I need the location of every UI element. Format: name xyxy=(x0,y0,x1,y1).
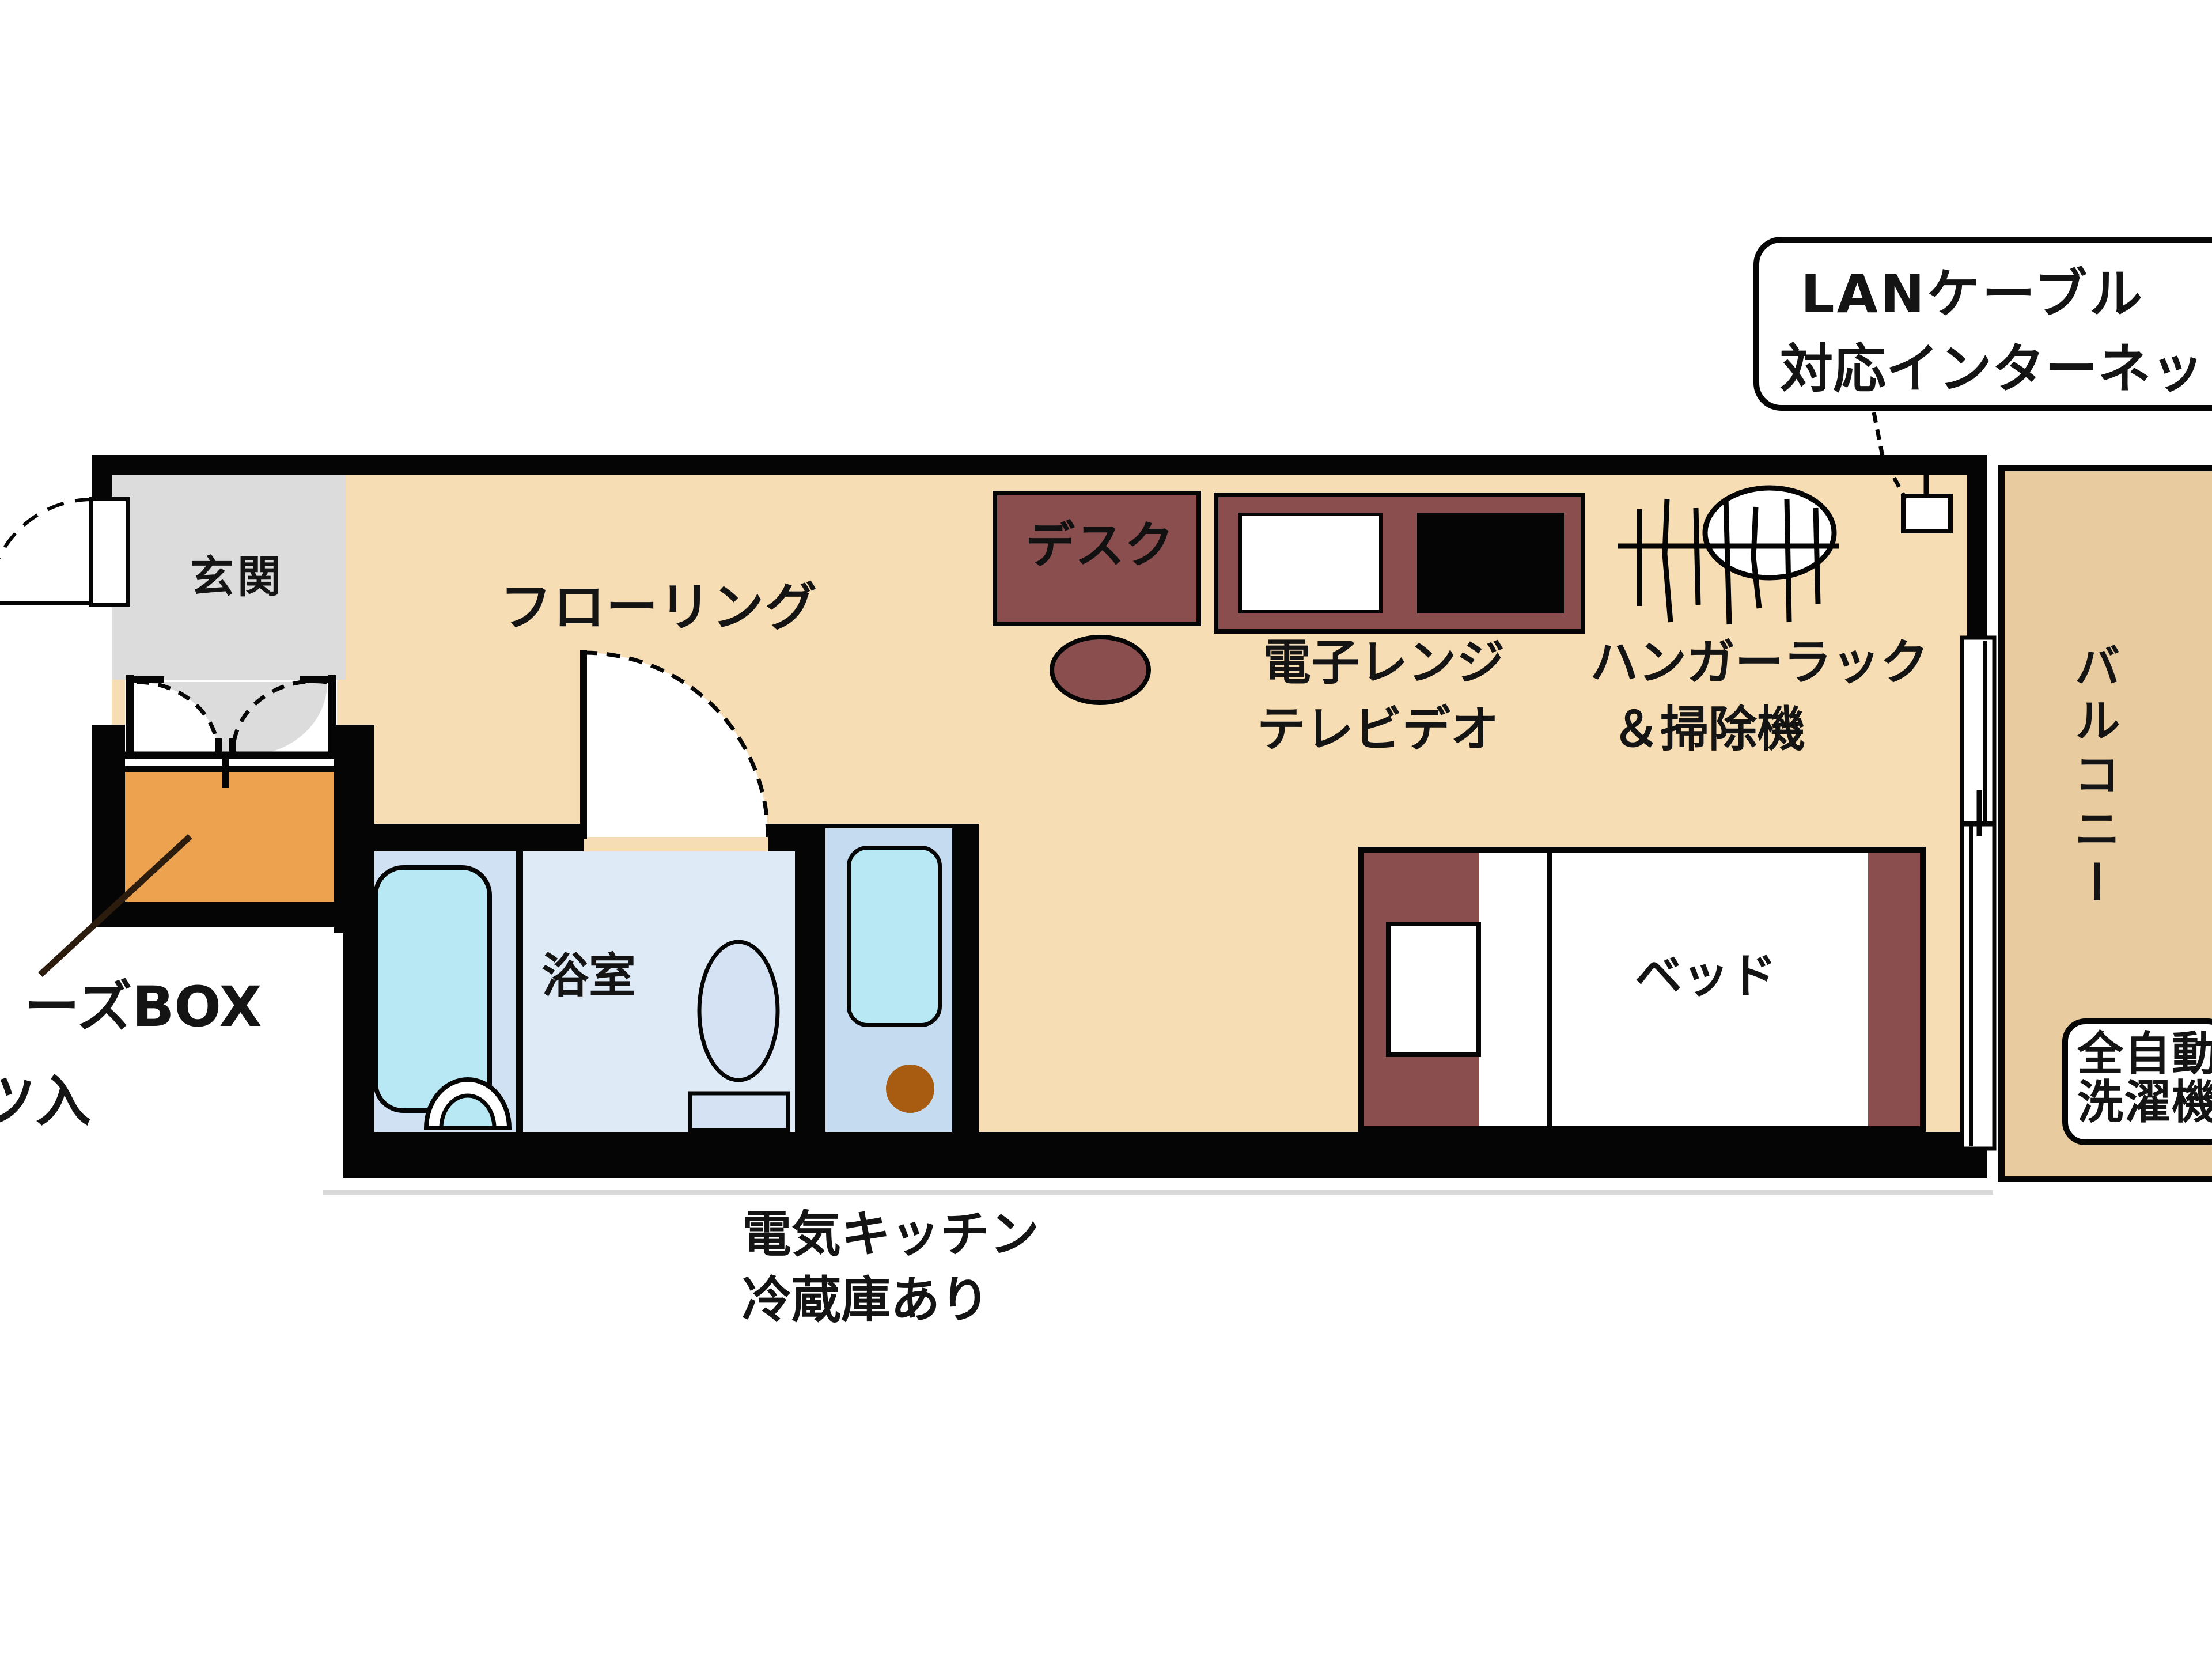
bed-pillow-shelf xyxy=(1386,922,1481,1057)
washing-machine: 全自動 洗濯機 xyxy=(2062,1018,2212,1145)
wall-kitchen-right xyxy=(952,824,979,1178)
kitchen-burner xyxy=(886,1065,934,1113)
wall-shadow-line xyxy=(323,1190,1993,1195)
wall-right-lower xyxy=(1967,1149,1987,1178)
kitchen-label-line1: 電気キッチン xyxy=(742,1209,1039,1260)
wall-left-upper xyxy=(92,455,112,503)
appliance-label-line1: 電子レンジ xyxy=(1263,637,1505,688)
lan-callout-line2: 対応インターネット xyxy=(1780,342,2212,397)
washer-label-line1: 全自動 xyxy=(2077,1030,2212,1078)
wall-left-lower xyxy=(92,725,125,927)
wall-kitchen-left xyxy=(795,824,825,1178)
bathtub xyxy=(373,865,492,1113)
genkan-label: 玄関 xyxy=(190,554,285,600)
shoebox-label-line1: ーズBOX xyxy=(24,978,262,1036)
bed-label: ベッド xyxy=(1635,952,1777,1001)
flooring-label: フローリング xyxy=(500,581,818,635)
shoebox-label-line2: ツ入 xyxy=(0,1073,91,1131)
appliance-label-line2: テレビデオ xyxy=(1257,704,1499,755)
shoebox xyxy=(125,766,334,902)
bed-divider-line xyxy=(1547,853,1552,1126)
hanger-label-line1: ハンガーラック xyxy=(1590,637,1929,688)
desk-stool xyxy=(1050,635,1151,705)
hanger-label-line2: ＆掃除機 xyxy=(1612,704,1805,755)
wall-bathroom-top-left xyxy=(343,824,584,851)
kitchen-label-line2: 冷蔵庫あり xyxy=(742,1274,990,1326)
microwave xyxy=(1238,513,1382,613)
wall-genkan-bottom xyxy=(92,902,363,927)
bathroom-divider-line xyxy=(516,851,523,1132)
washer-label-line2: 洗濯機 xyxy=(2077,1078,2212,1127)
wall-top xyxy=(92,455,1987,475)
balcony-rail-left xyxy=(1998,465,2005,1182)
wall-bathroom-left xyxy=(343,824,374,1178)
bed-foot-board xyxy=(1868,853,1920,1126)
wall-bottom xyxy=(343,1132,1987,1178)
outside-mask xyxy=(86,927,343,1198)
lan-callout-line1: LANケーブル xyxy=(1801,267,2145,323)
balcony-rail-top xyxy=(1998,465,2212,471)
lan-outlet xyxy=(1901,494,1953,533)
bathroom-label: 浴室 xyxy=(541,952,636,1001)
front-door-swing-arc xyxy=(0,499,92,603)
closet-door-area xyxy=(125,680,337,766)
lan-callout-box: LANケーブル 対応インターネット xyxy=(1753,237,2212,411)
kitchen-sink xyxy=(847,846,942,1027)
wall-right-upper xyxy=(1967,455,1987,638)
desk-label: デスク xyxy=(1025,520,1174,571)
balcony-label: バルコニー xyxy=(2069,642,2118,913)
floorplan-page: { "plan": { "title": "one-room apartment… xyxy=(0,0,2212,1659)
balcony-rail-bottom xyxy=(1998,1176,2212,1182)
tv-video xyxy=(1417,513,1564,613)
